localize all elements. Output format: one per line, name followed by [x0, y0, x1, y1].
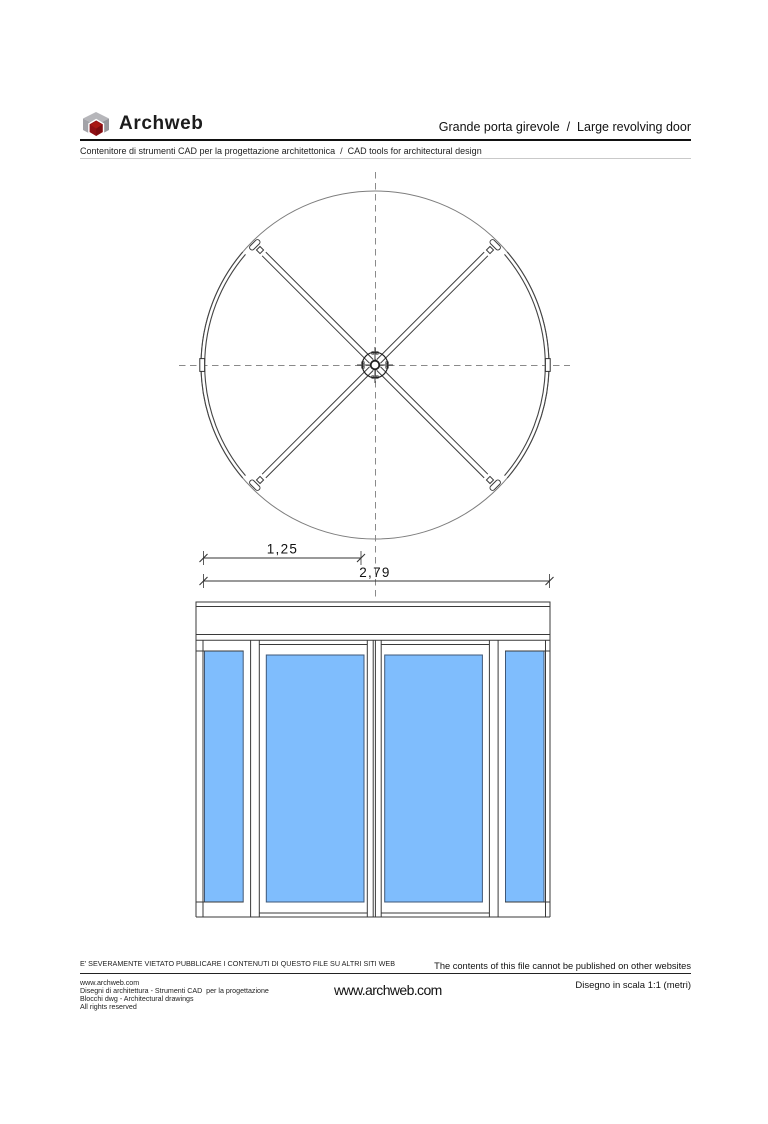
svg-text:2,79: 2,79 — [359, 565, 390, 580]
svg-text:1,25: 1,25 — [267, 542, 298, 557]
